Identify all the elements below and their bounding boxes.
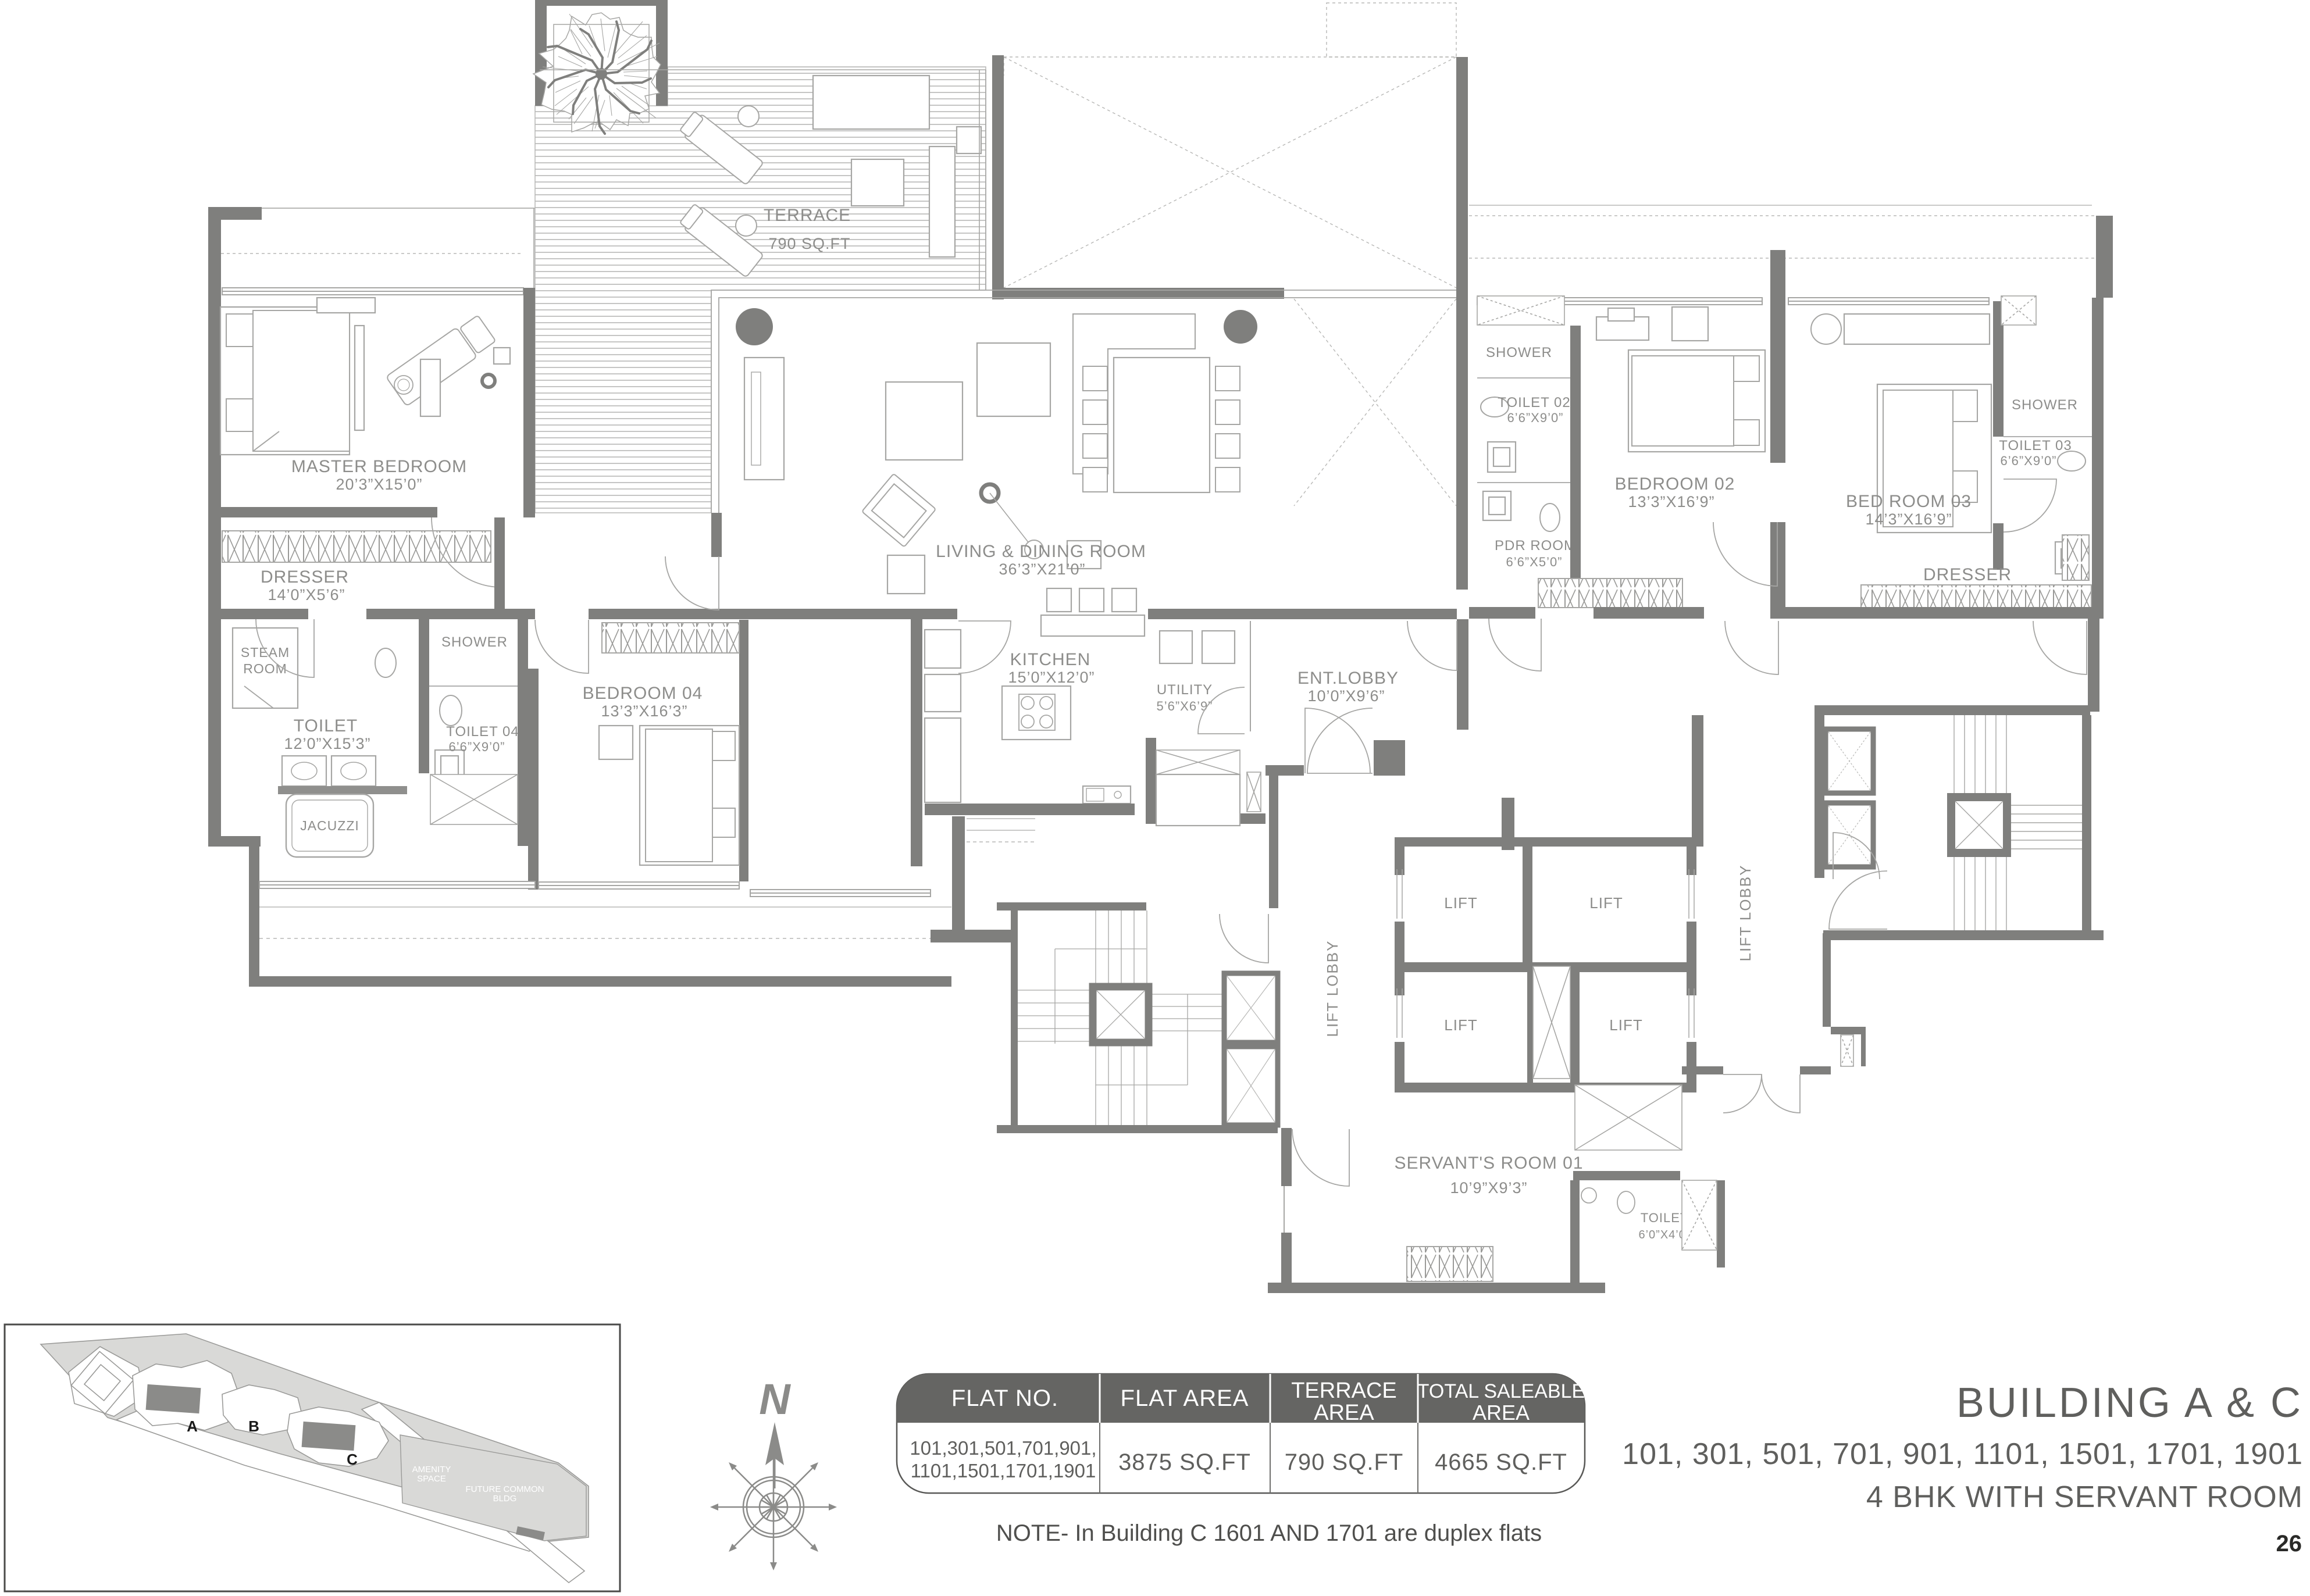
svg-text:10’0”X9’6”: 10’0”X9’6” bbox=[1307, 687, 1385, 705]
svg-text:13’3”X16’3”: 13’3”X16’3” bbox=[601, 702, 687, 720]
svg-text:6’6”X9’0”: 6’6”X9’0” bbox=[448, 740, 505, 754]
svg-text:TOILET 03: TOILET 03 bbox=[1999, 438, 2072, 454]
svg-text:14’0”X5’6”: 14’0”X5’6” bbox=[268, 586, 345, 604]
svg-text:FLAT AREA: FLAT AREA bbox=[1121, 1386, 1249, 1411]
svg-text:BUILDING A & C: BUILDING A & C bbox=[1956, 1380, 2303, 1426]
svg-text:4 BHK WITH SERVANT ROOM: 4 BHK WITH SERVANT ROOM bbox=[1866, 1480, 2303, 1514]
svg-text:ENT.LOBBY: ENT.LOBBY bbox=[1297, 669, 1399, 688]
svg-text:BLDG: BLDG bbox=[493, 1494, 517, 1504]
svg-text:15’0”X12’0”: 15’0”X12’0” bbox=[1008, 669, 1095, 686]
svg-text:101,301,501,701,901,: 101,301,501,701,901, bbox=[910, 1437, 1096, 1459]
svg-text:TOILET 04: TOILET 04 bbox=[446, 724, 519, 740]
svg-text:LIFT: LIFT bbox=[1444, 1016, 1477, 1034]
svg-text:FUTURE COMMON: FUTURE COMMON bbox=[466, 1484, 544, 1494]
svg-text:TERRACE: TERRACE bbox=[764, 206, 851, 225]
svg-text:TOILET 02: TOILET 02 bbox=[1498, 395, 1571, 410]
svg-text:TOILET: TOILET bbox=[294, 716, 358, 735]
svg-text:6’6”X9’0”: 6’6”X9’0” bbox=[1507, 410, 1563, 425]
svg-text:4665 SQ.FT: 4665 SQ.FT bbox=[1435, 1449, 1567, 1475]
svg-text:SHOWER: SHOWER bbox=[1486, 345, 1552, 360]
svg-text:SHOWER: SHOWER bbox=[2012, 397, 2078, 413]
svg-text:UTILITY: UTILITY bbox=[1157, 682, 1213, 698]
svg-text:26: 26 bbox=[2276, 1531, 2302, 1556]
svg-text:13’3”X16’9”: 13’3”X16’9” bbox=[1628, 493, 1714, 510]
svg-text:SHOWER: SHOWER bbox=[441, 634, 508, 650]
svg-text:KITCHEN: KITCHEN bbox=[1010, 650, 1091, 669]
svg-text:BED ROOM 03: BED ROOM 03 bbox=[1846, 492, 1972, 511]
svg-text:C: C bbox=[347, 1451, 358, 1468]
svg-text:B: B bbox=[248, 1418, 260, 1435]
svg-text:6’6”X9’0”: 6’6”X9’0” bbox=[2000, 454, 2056, 468]
svg-text:10’9”X9’3”: 10’9”X9’3” bbox=[1450, 1179, 1527, 1197]
svg-text:TOTAL SALEABLE: TOTAL SALEABLE bbox=[1417, 1380, 1585, 1402]
svg-text:TERRACE: TERRACE bbox=[1291, 1379, 1397, 1403]
svg-text:FLAT NO.: FLAT NO. bbox=[951, 1386, 1058, 1411]
svg-text:AREA: AREA bbox=[1473, 1401, 1530, 1424]
svg-text:14’3”X16’9”: 14’3”X16’9” bbox=[1865, 510, 1952, 528]
svg-text:20’3”X15’0”: 20’3”X15’0” bbox=[336, 476, 422, 493]
svg-text:ROOM: ROOM bbox=[243, 661, 287, 676]
svg-text:LIFT LOBBY: LIFT LOBBY bbox=[1324, 940, 1341, 1037]
svg-text:NOTE- In Building C 1601 AND 1: NOTE- In Building C 1601 AND 1701 are du… bbox=[996, 1520, 1542, 1546]
svg-text:AREA: AREA bbox=[1314, 1401, 1374, 1425]
svg-text:BEDROOM 04: BEDROOM 04 bbox=[583, 684, 703, 703]
svg-text:101, 301, 501, 701, 901, 1101,: 101, 301, 501, 701, 901, 1101, 1501, 170… bbox=[1622, 1437, 2303, 1471]
svg-text:BEDROOM 02: BEDROOM 02 bbox=[1615, 474, 1735, 494]
svg-text:SPACE: SPACE bbox=[417, 1474, 446, 1484]
svg-text:LIFT: LIFT bbox=[1609, 1016, 1642, 1034]
svg-text:LIFT: LIFT bbox=[1444, 894, 1477, 912]
svg-text:3875 SQ.FT: 3875 SQ.FT bbox=[1118, 1449, 1251, 1475]
svg-text:AMENITY: AMENITY bbox=[412, 1465, 451, 1474]
svg-text:LIVING & DINING ROOM: LIVING & DINING ROOM bbox=[936, 542, 1146, 561]
svg-text:JACUZZI: JACUZZI bbox=[300, 818, 359, 833]
svg-text:12’0”X15’3”: 12’0”X15’3” bbox=[284, 735, 370, 752]
svg-text:PDR ROOM: PDR ROOM bbox=[1495, 538, 1576, 554]
svg-text:LIFT LOBBY: LIFT LOBBY bbox=[1737, 865, 1754, 962]
svg-text:DRESSER: DRESSER bbox=[1923, 565, 2012, 584]
svg-text:TOILET: TOILET bbox=[1641, 1211, 1689, 1225]
svg-text:SERVANT'S ROOM 01: SERVANT'S ROOM 01 bbox=[1394, 1154, 1583, 1173]
svg-text:DRESSER: DRESSER bbox=[261, 567, 349, 587]
svg-text:A: A bbox=[187, 1418, 198, 1435]
svg-text:36’3”X21’0”: 36’3”X21’0” bbox=[999, 560, 1085, 578]
svg-text:MASTER BEDROOM: MASTER BEDROOM bbox=[291, 457, 467, 476]
svg-text:1101,1501,1701,1901: 1101,1501,1701,1901 bbox=[911, 1460, 1096, 1481]
svg-text:6’6”X5’0”: 6’6”X5’0” bbox=[1506, 555, 1562, 569]
svg-text:N: N bbox=[759, 1375, 791, 1423]
svg-text:LIFT: LIFT bbox=[1589, 894, 1623, 912]
svg-text:STEAM: STEAM bbox=[241, 645, 290, 660]
svg-text:790 SQ.FT: 790 SQ.FT bbox=[1285, 1449, 1404, 1475]
svg-text:790 SQ.FT: 790 SQ.FT bbox=[768, 235, 850, 252]
